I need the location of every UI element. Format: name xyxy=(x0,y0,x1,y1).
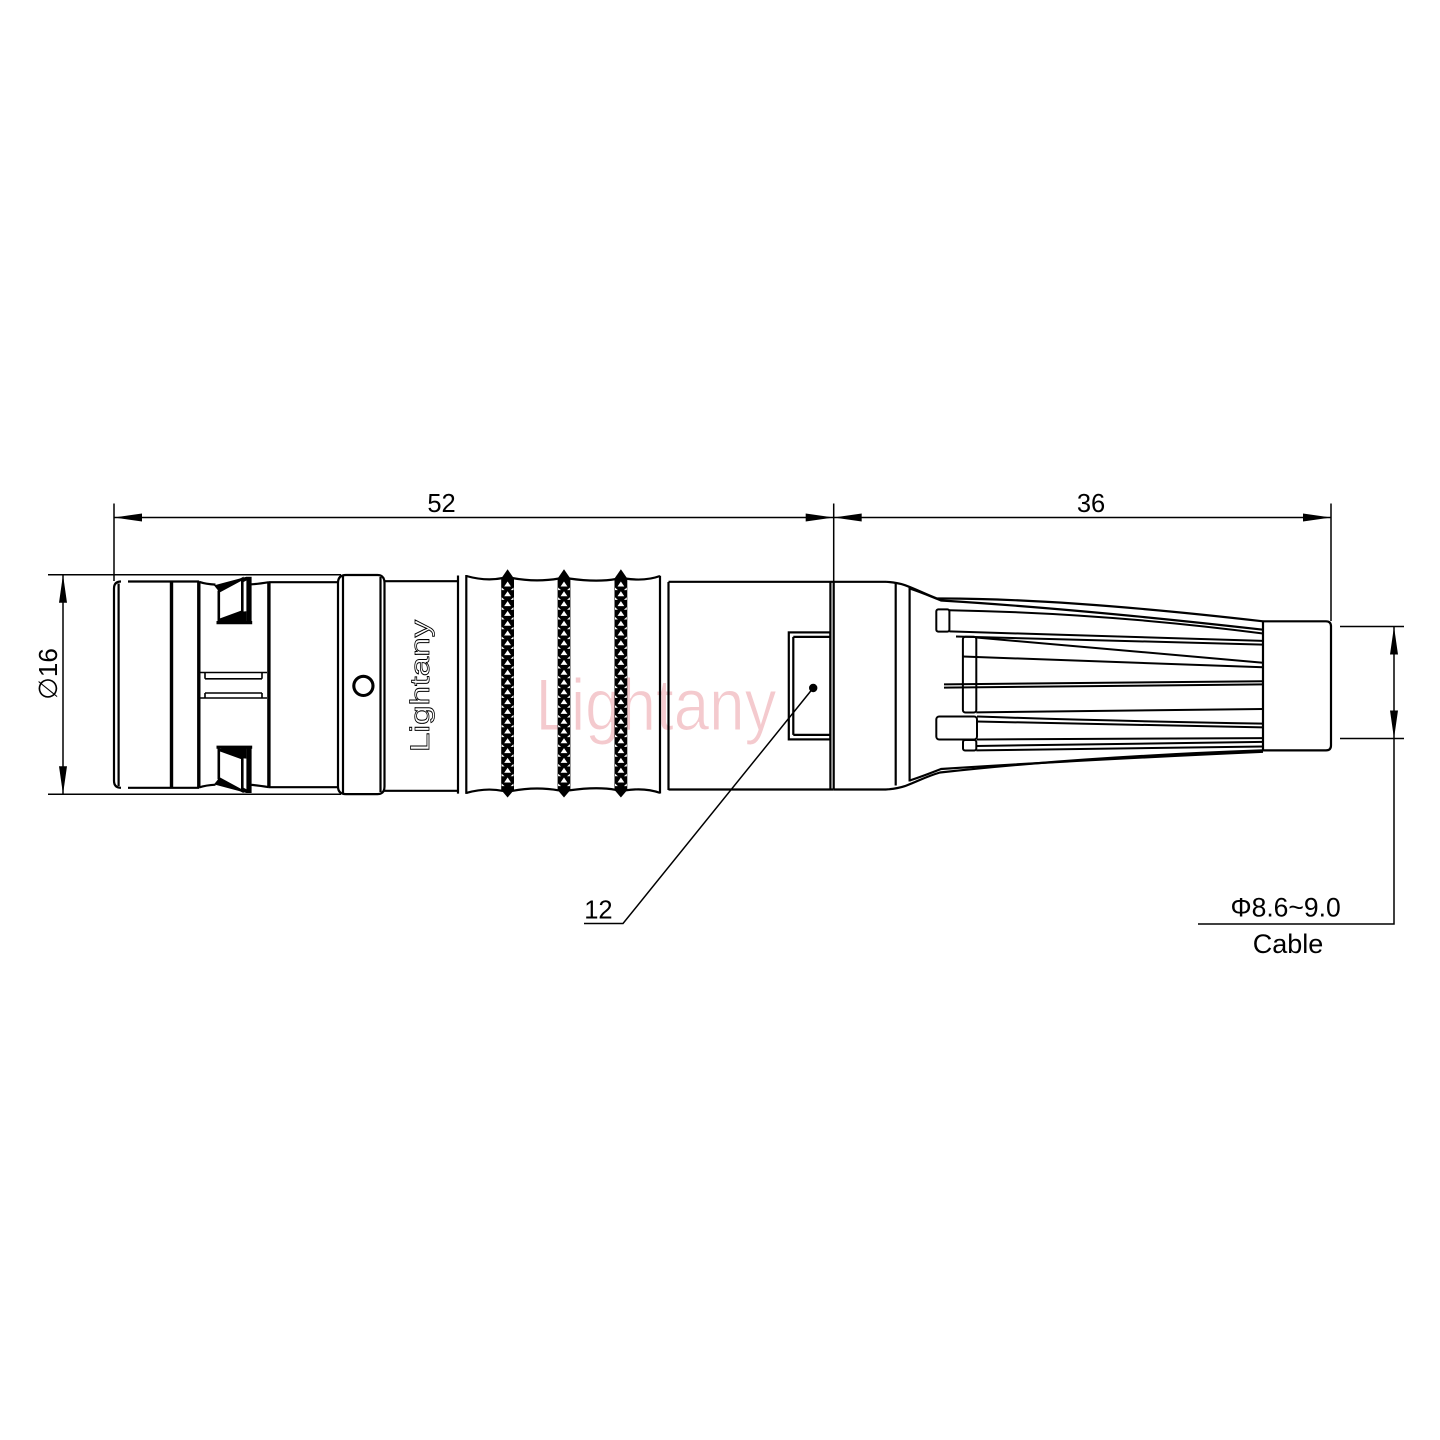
svg-text:Cable: Cable xyxy=(1253,929,1324,959)
svg-text:∅16: ∅16 xyxy=(33,648,63,700)
svg-text:36: 36 xyxy=(1077,490,1105,518)
svg-text:12: 12 xyxy=(584,897,612,925)
svg-text:Φ8.6~9.0: Φ8.6~9.0 xyxy=(1230,893,1340,923)
svg-text:Lightany: Lightany xyxy=(405,619,435,752)
svg-text:Lightany: Lightany xyxy=(536,664,778,746)
svg-text:52: 52 xyxy=(427,490,455,518)
